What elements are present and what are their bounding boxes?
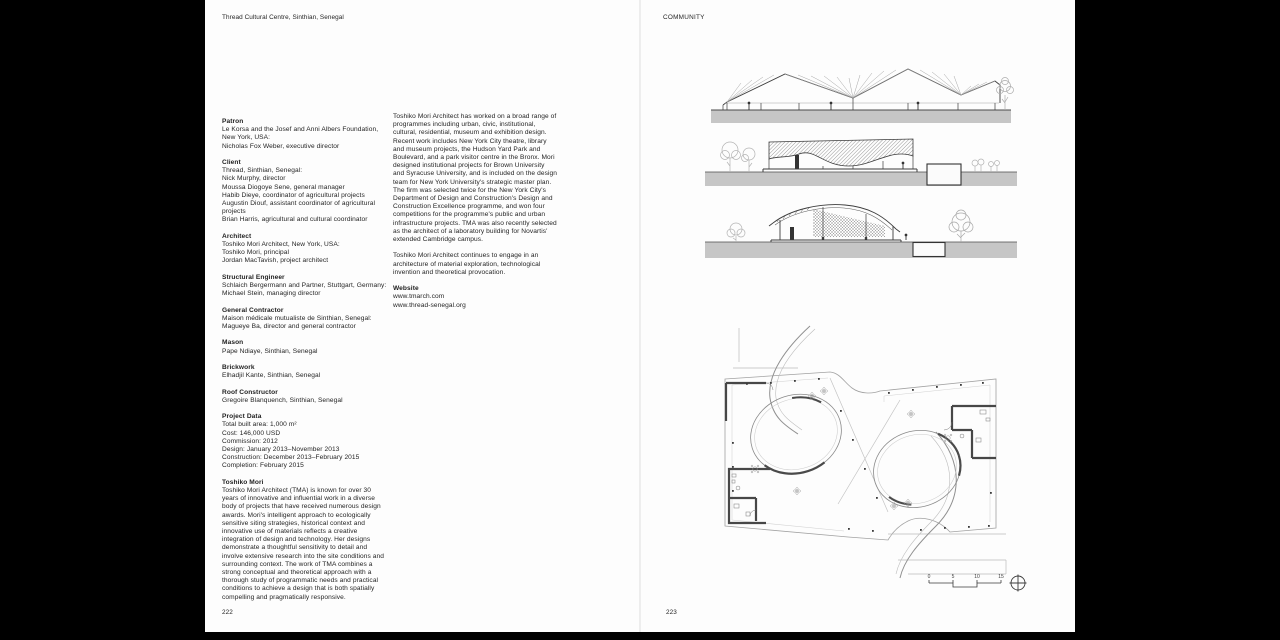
trees-left <box>721 142 756 172</box>
credit-section-architect: Architect Toshiko Mori Architect, New Yo… <box>222 233 387 266</box>
north-symbol-icon <box>1010 575 1027 592</box>
credit-line: Michael Stein, managing director <box>222 290 387 298</box>
credit-line: Construction: December 2013–February 201… <box>222 454 387 462</box>
credit-line: Habib Dieye, coordinator of agricultural… <box>222 192 387 200</box>
scale-bar-svg: 0 5 10 15 <box>924 571 1030 595</box>
credit-line: Commission: 2012 <box>222 438 387 446</box>
website-url: www.tmarch.com <box>393 293 557 301</box>
furniture <box>751 388 952 510</box>
sweep-curves <box>770 326 957 578</box>
book-spread: Thread Cultural Centre, Sinthian, Senega… <box>205 0 1075 632</box>
credit-line: Nick Murphy, director <box>222 175 387 183</box>
website-section: Website www.tmarch.com www.thread-senega… <box>393 285 557 310</box>
credit-line: Moussa Diogoye Sene, general manager <box>222 184 387 192</box>
trees-right <box>972 159 1000 172</box>
credit-section-structural-engineer: Structural Engineer Schlaich Bergermann … <box>222 274 387 299</box>
section-heading: Toshiko Mori <box>222 479 387 487</box>
credits-column: Patron Le Korsa and the Josef and Anni A… <box>222 118 387 610</box>
tree-left <box>727 223 745 242</box>
section-heading: Roof Constructor <box>222 389 387 397</box>
figure <box>902 162 904 169</box>
terrace-lines <box>888 534 1006 574</box>
credit-line: Brian Harris, agricultural and cultural … <box>222 216 387 224</box>
credit-section-general-contractor: General Contractor Maison médicale mutua… <box>222 307 387 332</box>
roof <box>723 69 1000 110</box>
scale-label-10: 10 <box>974 574 980 580</box>
elevation-svg <box>703 128 1019 194</box>
rooms-right <box>952 406 996 458</box>
credit-line: Nicholas Fox Weber, executive director <box>222 143 387 151</box>
credit-section-project-data: Project Data Total built area: 1,000 m² … <box>222 413 387 470</box>
credit-line: Completion: February 2015 <box>222 462 387 470</box>
credit-line: Augustin Diouf, assistant coordinator of… <box>222 200 387 208</box>
credit-line: Total built area: 1,000 m² <box>222 421 387 429</box>
scale-bar-line <box>929 580 1001 587</box>
figure <box>905 234 907 240</box>
ground <box>705 242 1017 258</box>
page-number-right: 223 <box>666 609 677 617</box>
section-heading: General Contractor <box>222 307 387 315</box>
ground <box>711 110 1011 123</box>
credit-line: Design: January 2013–November 2013 <box>222 446 387 454</box>
credit-line: Toshiko Mori Architect, New York, USA: <box>222 241 387 249</box>
section-heading: Website <box>393 285 557 293</box>
section-heading: Structural Engineer <box>222 274 387 282</box>
rooms-left <box>726 383 770 523</box>
scale-bar: 0 5 10 15 <box>924 571 1030 595</box>
section-heading: Patron <box>222 118 387 126</box>
credit-line: Thread, Sinthian, Senegal: <box>222 167 387 175</box>
credit-line: Jordan MacTavish, project architect <box>222 257 387 265</box>
human-figures <box>748 102 919 110</box>
section-heading: Mason <box>222 339 387 347</box>
credit-section-mason: Mason Pape Ndiaye, Sinthian, Senegal <box>222 339 387 355</box>
floor-plan-svg <box>712 322 1012 580</box>
credit-line: Maison médicale mutualiste de Sinthian, … <box>222 315 387 323</box>
page-number-left: 222 <box>222 609 233 617</box>
credit-line: Elhadjil Kante, Sinthian, Senegal <box>222 372 387 380</box>
about-paragraph-2: Toshiko Mori Architect continues to enga… <box>393 252 557 277</box>
scale-label-0: 0 <box>928 574 931 580</box>
credit-line: Magueye Ba, director and general contrac… <box>222 323 387 331</box>
section-heading: Client <box>222 159 387 167</box>
cross-section-drawing <box>703 196 1019 264</box>
water-basin <box>913 243 945 257</box>
bio-text: Toshiko Mori Architect (TMA) is known fo… <box>222 487 387 602</box>
building <box>763 139 917 172</box>
scale-label-5: 5 <box>952 574 955 580</box>
cross-section-svg <box>703 196 1019 264</box>
credit-line: New York, USA: <box>222 134 387 142</box>
long-section-svg <box>703 58 1019 128</box>
tree-right <box>949 210 973 242</box>
section-heading: Project Data <box>222 413 387 421</box>
credit-line: Toshiko Mori, principal <box>222 249 387 257</box>
section-heading: Architect <box>222 233 387 241</box>
about-paragraph-1: Toshiko Mori Architect has worked on a b… <box>393 113 557 244</box>
credit-section-roof-constructor: Roof Constructor Gregoire Blanquench, Si… <box>222 389 387 405</box>
credit-line: Schlaich Bergermann and Partner, Stuttga… <box>222 282 387 290</box>
water-basin <box>927 164 961 185</box>
floor-plan-drawing <box>712 322 1012 580</box>
website-url: www.thread-senegal.org <box>393 302 557 310</box>
scale-label-15: 15 <box>998 574 1004 580</box>
credit-line: Gregoire Blanquench, Sinthian, Senegal <box>222 397 387 405</box>
long-section-drawing <box>703 58 1019 128</box>
building <box>769 205 901 242</box>
section-heading: Brickwork <box>222 364 387 372</box>
elevation-drawing <box>703 128 1019 194</box>
bio-section: Toshiko Mori Toshiko Mori Architect (TMA… <box>222 479 387 602</box>
ground <box>705 172 1017 186</box>
path-lines <box>830 378 900 512</box>
credit-section-client: Client Thread, Sinthian, Senegal: Nick M… <box>222 159 387 225</box>
page-gutter <box>639 0 641 632</box>
running-head-right: COMMUNITY <box>663 14 705 22</box>
credit-line: Cost: 146,000 USD <box>222 430 387 438</box>
credit-section-patron: Patron Le Korsa and the Josef and Anni A… <box>222 118 387 151</box>
description-column: Toshiko Mori Architect has worked on a b… <box>393 113 557 318</box>
tree-icon <box>997 78 1014 111</box>
plan-outline <box>725 328 996 540</box>
credit-line: projects <box>222 208 387 216</box>
credit-line: Le Korsa and the Josef and Anni Albers F… <box>222 126 387 134</box>
credit-line: Pape Ndiaye, Sinthian, Senegal <box>222 348 387 356</box>
scale-bar-labels: 0 5 10 15 <box>928 574 1004 580</box>
credit-section-brickwork: Brickwork Elhadjil Kante, Sinthian, Sene… <box>222 364 387 380</box>
running-head-left: Thread Cultural Centre, Sinthian, Senega… <box>222 14 344 22</box>
